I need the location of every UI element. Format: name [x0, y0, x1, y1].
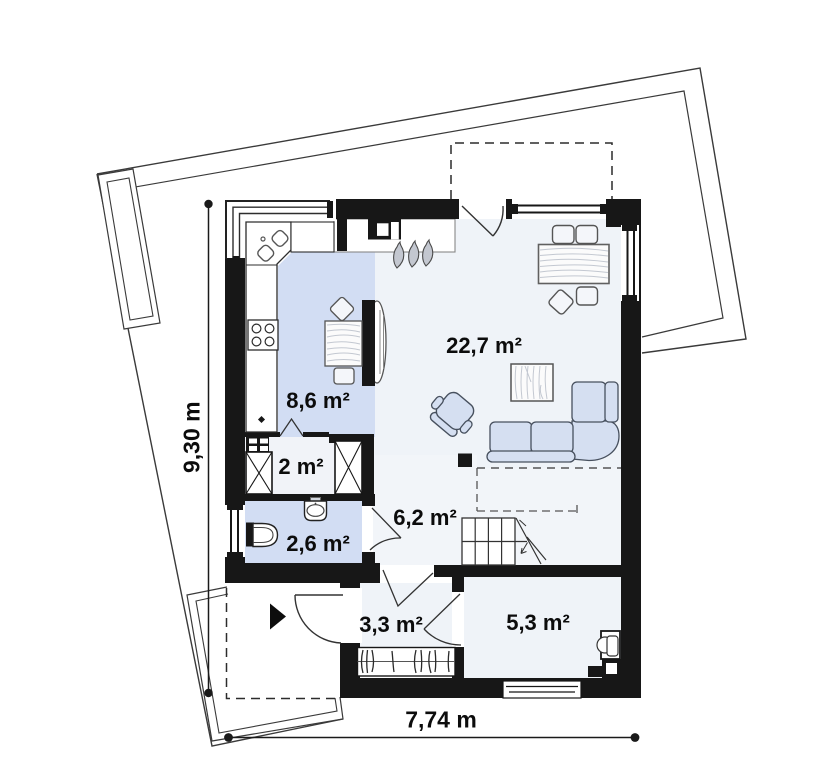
svg-text:7,74 m: 7,74 m: [405, 707, 477, 733]
svg-text:6,2 m²: 6,2 m²: [393, 505, 457, 530]
svg-text:2,6 m²: 2,6 m²: [286, 531, 350, 556]
svg-text:3,3 m²: 3,3 m²: [359, 612, 423, 637]
svg-text:2 m²: 2 m²: [278, 454, 323, 479]
svg-text:8,6 m²: 8,6 m²: [286, 388, 350, 413]
svg-text:9,30 m: 9,30 m: [179, 401, 205, 473]
svg-text:22,7 m²: 22,7 m²: [446, 333, 522, 358]
svg-text:5,3 m²: 5,3 m²: [506, 610, 570, 635]
